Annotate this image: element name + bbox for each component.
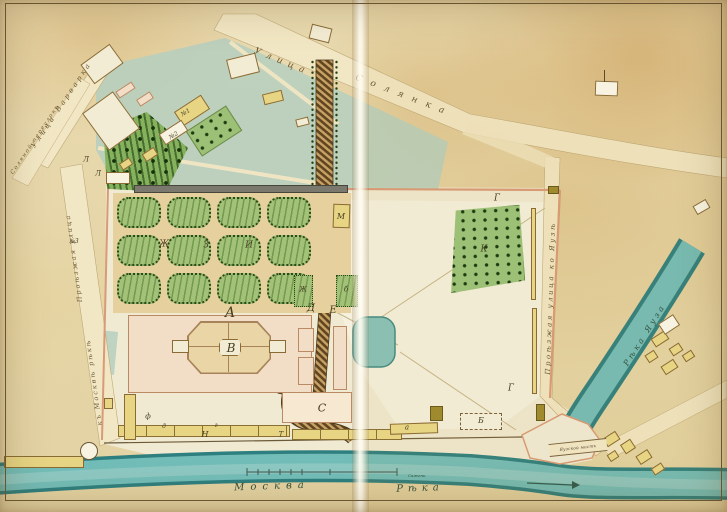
corner-tower — [80, 442, 98, 460]
letter-G-wall: Г — [494, 195, 500, 204]
flag-pole — [604, 70, 605, 82]
letter-I: И — [245, 242, 253, 251]
letter-L2: Л — [95, 171, 101, 178]
letter-B: В — [227, 342, 236, 354]
parterre — [217, 197, 261, 228]
letter-C: С — [318, 403, 326, 414]
letter-Zh: Ж — [159, 241, 169, 250]
parterre — [217, 273, 261, 304]
parterre — [167, 197, 211, 228]
letter-E: Е — [329, 306, 336, 316]
letter-B2: Б — [478, 417, 484, 425]
letter-Z: З — [203, 242, 209, 251]
letter-d: д — [162, 424, 166, 430]
letter-b-plot: б — [344, 287, 348, 294]
street-wall — [532, 308, 537, 394]
letter-M: М — [337, 213, 345, 221]
scale-bar-label: Сажени — [408, 474, 426, 478]
palace-wing — [298, 328, 314, 352]
parterre — [117, 273, 161, 304]
map-world: Яузской мостъ Улица Солянка Улица Варвар… — [0, 0, 727, 512]
street-wall — [531, 208, 536, 300]
embankment-building — [292, 429, 402, 440]
building — [106, 172, 130, 184]
letter-T: Т — [279, 432, 284, 439]
map-canvas: Яузской мостъ Улица Солянка Улица Варвар… — [0, 0, 727, 512]
letter-Zh-plot: Ж — [299, 287, 307, 294]
letter-g: г — [214, 423, 217, 429]
gate-building — [548, 186, 559, 194]
wharf-strip — [4, 456, 84, 468]
parterre — [267, 235, 311, 266]
letter-D: Д — [307, 304, 315, 314]
outbuilding — [430, 406, 443, 421]
parterre — [267, 197, 311, 228]
parterre — [167, 273, 211, 304]
building — [104, 398, 113, 409]
garden-north-wall — [134, 185, 348, 193]
letter-G-street: Г — [508, 385, 514, 394]
letter-a: а — [405, 425, 409, 432]
letter-N: Н — [202, 431, 209, 439]
right-sheet-tint — [362, 0, 727, 512]
letter-A: А — [225, 306, 236, 320]
letter-K: К — [481, 246, 488, 255]
parterre — [217, 235, 261, 266]
building — [124, 394, 136, 440]
bridge-label: Яузской мостъ — [559, 443, 596, 452]
building — [595, 81, 619, 97]
palace-tab-west — [172, 340, 189, 353]
parterre — [117, 197, 161, 228]
palace-wing — [333, 326, 347, 390]
outbuilding — [536, 404, 545, 421]
label-no3: №3 — [69, 239, 79, 245]
palace-wing — [298, 357, 314, 385]
letter-f: ф — [145, 414, 150, 421]
fold-crease — [352, 0, 369, 512]
letter-L1: Л — [83, 157, 89, 164]
embankment-building — [390, 422, 438, 435]
river-label-moskva-2: Рѣка — [396, 483, 444, 495]
palace-tab-east — [269, 340, 286, 353]
parterre — [117, 235, 161, 266]
